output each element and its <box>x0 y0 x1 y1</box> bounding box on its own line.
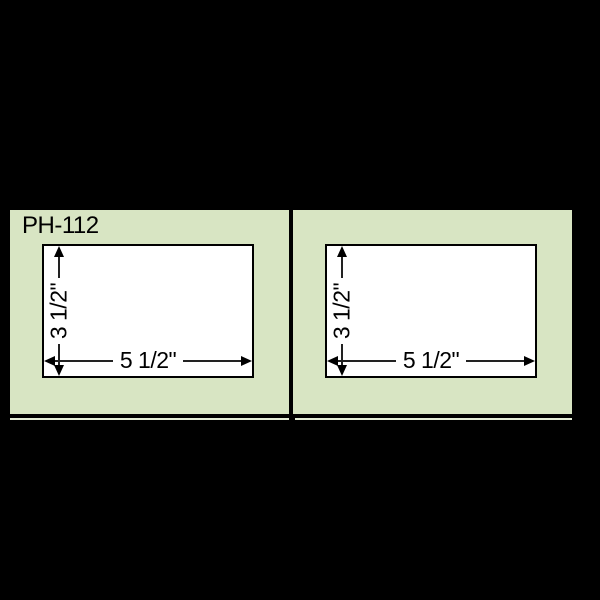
height-dimension-label: 3 1/2" <box>48 283 71 339</box>
pocket-window-left: 3 1/2" 5 1/2" <box>42 244 254 378</box>
dimension-line <box>183 360 241 362</box>
width-dimension-right: 5 1/2" <box>327 348 535 374</box>
pocket-window-right: 3 1/2" 5 1/2" <box>325 244 537 378</box>
diagram-canvas: PH-112 3 1/2" 5 1/2" <box>0 0 600 600</box>
arrow-up-icon <box>337 246 347 257</box>
height-dimension-label-wrap: 3 1/2" <box>332 278 352 344</box>
next-row-edge-right <box>295 418 572 420</box>
arrow-right-icon <box>524 356 535 366</box>
width-dimension-label: 5 1/2" <box>403 349 459 372</box>
arrow-left-icon <box>44 356 55 366</box>
product-code: PH-112 <box>22 212 99 241</box>
width-dimension-label: 5 1/2" <box>120 349 176 372</box>
arrow-up-icon <box>54 246 64 257</box>
dimension-line <box>55 360 113 362</box>
dimension-line <box>58 257 60 278</box>
height-dimension-label: 3 1/2" <box>331 283 354 339</box>
dimension-line <box>466 360 524 362</box>
next-row-edge-left <box>10 418 289 420</box>
height-dimension-label-wrap: 3 1/2" <box>49 278 69 344</box>
dimension-line <box>338 360 396 362</box>
arrow-right-icon <box>241 356 252 366</box>
arrow-left-icon <box>327 356 338 366</box>
pocket-panel-left: PH-112 3 1/2" 5 1/2" <box>8 208 291 416</box>
width-dimension-left: 5 1/2" <box>44 348 252 374</box>
pocket-panel-right: 3 1/2" 5 1/2" <box>291 208 574 416</box>
dimension-line <box>341 257 343 278</box>
